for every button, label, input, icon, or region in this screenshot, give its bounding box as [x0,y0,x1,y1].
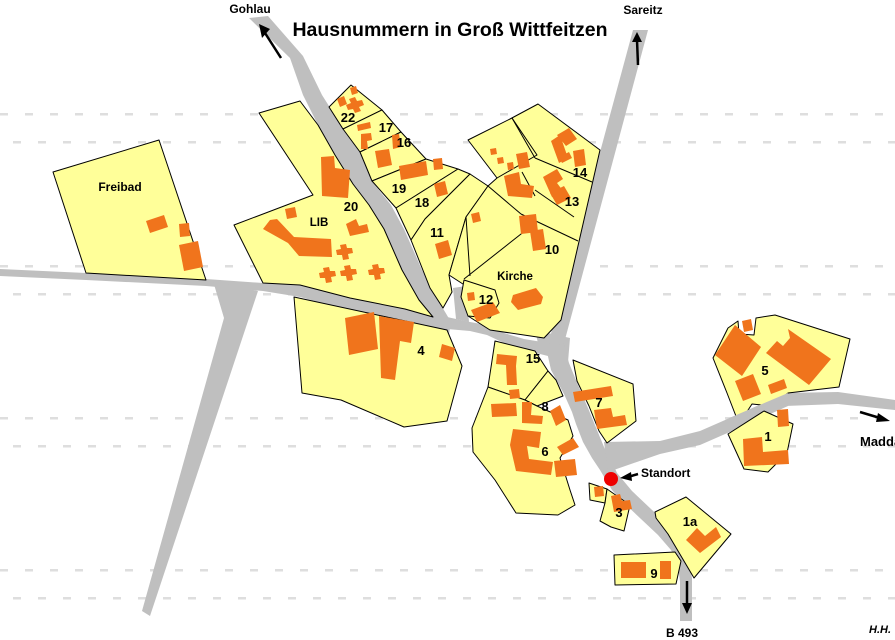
svg-text:18: 18 [415,195,429,210]
svg-text:Freibad: Freibad [98,180,141,194]
svg-text:11: 11 [430,225,444,240]
svg-text:10: 10 [545,242,559,257]
svg-text:Sareitz: Sareitz [623,3,662,17]
svg-text:6: 6 [541,444,548,459]
svg-text:1a: 1a [683,514,698,529]
svg-text:16: 16 [397,135,411,150]
svg-text:3: 3 [615,505,622,520]
svg-text:B 493: B 493 [666,626,698,640]
svg-text:8: 8 [541,399,548,414]
svg-text:22: 22 [341,110,355,125]
svg-text:Gohlau: Gohlau [229,2,270,16]
svg-text:15: 15 [526,351,540,366]
svg-text:1: 1 [764,429,771,444]
svg-text:4: 4 [417,343,425,358]
svg-text:20: 20 [344,199,358,214]
svg-text:7: 7 [595,395,602,410]
svg-text:H.H.: H.H. [869,624,891,636]
svg-text:19: 19 [392,181,406,196]
svg-text:5: 5 [761,363,768,378]
svg-text:13: 13 [565,194,579,209]
svg-text:17: 17 [379,120,393,135]
svg-text:14: 14 [573,165,588,180]
svg-text:Standort: Standort [641,466,690,480]
svg-text:12: 12 [479,292,493,307]
svg-text:Maddau: Maddau [860,434,895,449]
svg-text:9: 9 [650,566,657,581]
svg-text:Kirche: Kirche [497,271,533,283]
svg-text:Hausnummern in Groß Wittfeitze: Hausnummern in Groß Wittfeitzen [292,19,607,41]
svg-text:LIB: LIB [310,217,329,229]
